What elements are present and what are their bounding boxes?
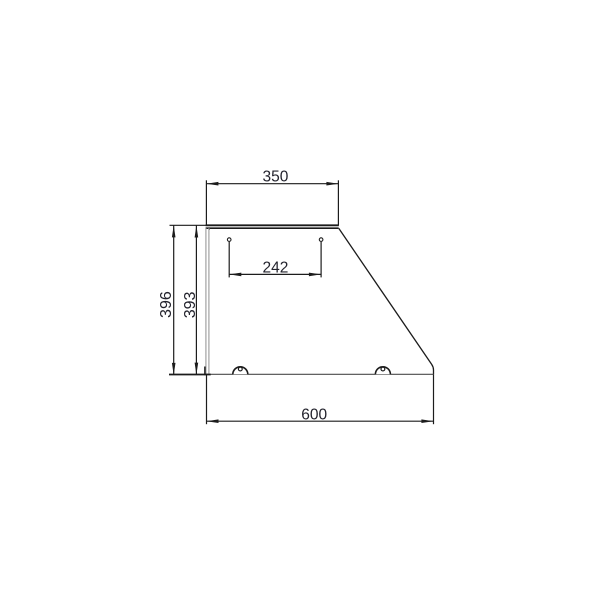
svg-text:350: 350 [262, 169, 288, 186]
svg-text:242: 242 [262, 260, 288, 277]
svg-text:600: 600 [301, 406, 327, 423]
svg-text:396: 396 [158, 291, 175, 318]
svg-text:393: 393 [182, 291, 199, 318]
